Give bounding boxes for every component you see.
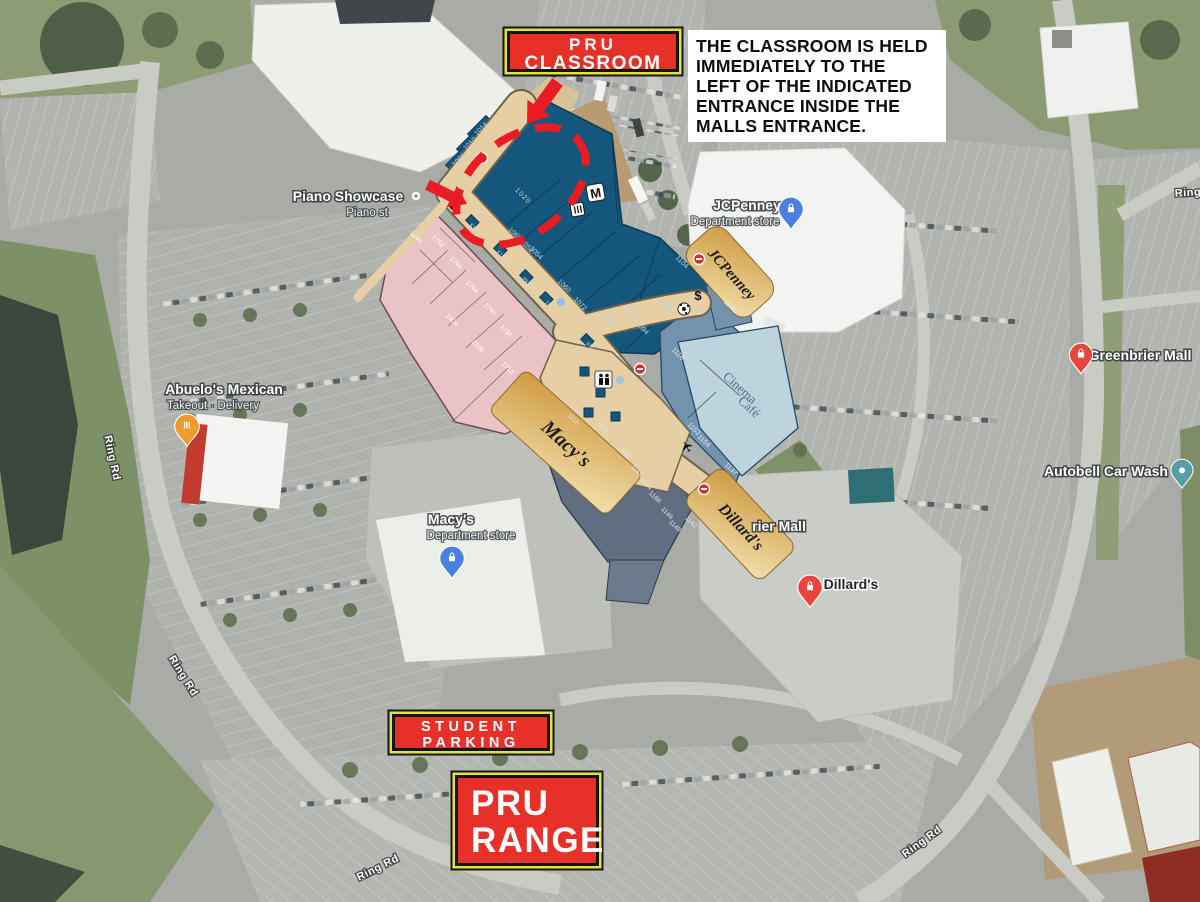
poi-greenbrier-mall[interactable]: Greenbrier Mall <box>1089 347 1192 363</box>
m-logo-icon: M <box>586 183 606 203</box>
pru-classroom-line2: CLASSROOM <box>510 54 676 73</box>
poi-jcpenney-sub: Department store <box>691 216 780 228</box>
student-parking-line1: STUDENT <box>395 719 547 735</box>
student-parking-line2: PARKING <box>395 735 547 751</box>
poi-abuelos[interactable]: Abuelo's Mexican <box>165 381 283 397</box>
soccer-icon <box>678 303 690 315</box>
restroom-icon <box>595 371 612 388</box>
pru-classroom-line1: PRU <box>510 36 676 54</box>
dollar-icon: $ <box>694 288 702 303</box>
poi-piano-showcase[interactable]: Piano Showcase <box>293 188 404 204</box>
classroom-note: THE CLASSROOM IS HELD IMMEDIATELY TO THE… <box>688 30 946 142</box>
poi-autobell[interactable]: Autobell Car Wash <box>1044 463 1168 479</box>
poi-macys[interactable]: Macy's <box>428 511 474 527</box>
pru-range-line2: RANGE <box>471 822 596 859</box>
pru-classroom-banner: PRU CLASSROOM <box>507 31 679 72</box>
pru-range-line1: PRU <box>471 785 596 822</box>
map-canvas: JCPenney Macy's Dillard's 1020 1068 1052… <box>0 0 1200 902</box>
poi-abuelos-sub: Takeout · Delivery <box>167 400 259 412</box>
poi-piano-sub: Piano st <box>346 207 388 219</box>
pru-range-banner: PRU RANGE <box>455 775 599 866</box>
poi-jcpenney[interactable]: JCPenney <box>713 197 781 213</box>
poi-macys-sub: Department store <box>427 530 516 542</box>
satellite-map: JCPenney Macy's Dillard's 1020 1068 1052… <box>0 0 1200 902</box>
poi-dillards[interactable]: Dillard's <box>824 576 879 592</box>
road-label-ring-partial: Ring <box>1174 186 1200 199</box>
poi-greenbrier-partial: rier Mall <box>752 518 806 534</box>
student-parking-banner: STUDENT PARKING <box>392 714 550 751</box>
